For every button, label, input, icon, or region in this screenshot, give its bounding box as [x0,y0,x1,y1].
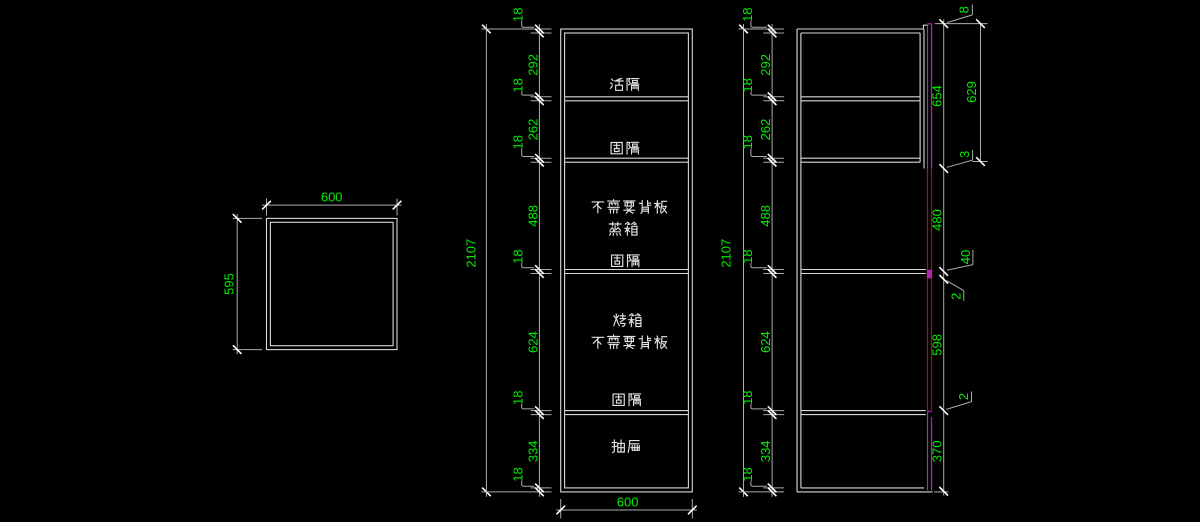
svg-text:18: 18 [740,390,755,404]
svg-text:334: 334 [525,440,540,462]
svg-text:2107: 2107 [464,239,479,268]
svg-text:18: 18 [511,467,526,481]
svg-text:2: 2 [949,293,964,300]
svg-text:292: 292 [758,54,773,76]
svg-text:18: 18 [740,78,755,92]
svg-text:370: 370 [929,441,944,463]
svg-text:18: 18 [511,135,526,149]
svg-text:18: 18 [740,7,755,21]
svg-text:262: 262 [525,119,540,141]
svg-text:654: 654 [929,85,944,107]
svg-text:624: 624 [758,331,773,353]
svg-text:488: 488 [525,205,540,227]
svg-text:2: 2 [956,393,971,400]
svg-text:3: 3 [957,151,972,158]
svg-text:334: 334 [758,440,773,462]
svg-text:488: 488 [758,205,773,227]
svg-text:18: 18 [740,135,755,149]
svg-text:18: 18 [511,7,526,21]
svg-text:18: 18 [740,467,755,481]
svg-text:595: 595 [222,273,237,295]
svg-text:40: 40 [958,250,973,264]
svg-text:598: 598 [929,334,944,356]
svg-text:600: 600 [321,189,343,204]
svg-text:600: 600 [617,495,639,510]
svg-text:18: 18 [511,390,526,404]
svg-text:480: 480 [929,209,944,231]
svg-text:2107: 2107 [718,239,733,268]
svg-text:262: 262 [758,119,773,141]
svg-text:8: 8 [957,6,972,13]
svg-text:18: 18 [511,249,526,263]
svg-text:18: 18 [740,249,755,263]
svg-text:18: 18 [511,78,526,92]
svg-text:292: 292 [525,54,540,76]
svg-text:624: 624 [525,331,540,353]
svg-text:629: 629 [964,81,979,103]
